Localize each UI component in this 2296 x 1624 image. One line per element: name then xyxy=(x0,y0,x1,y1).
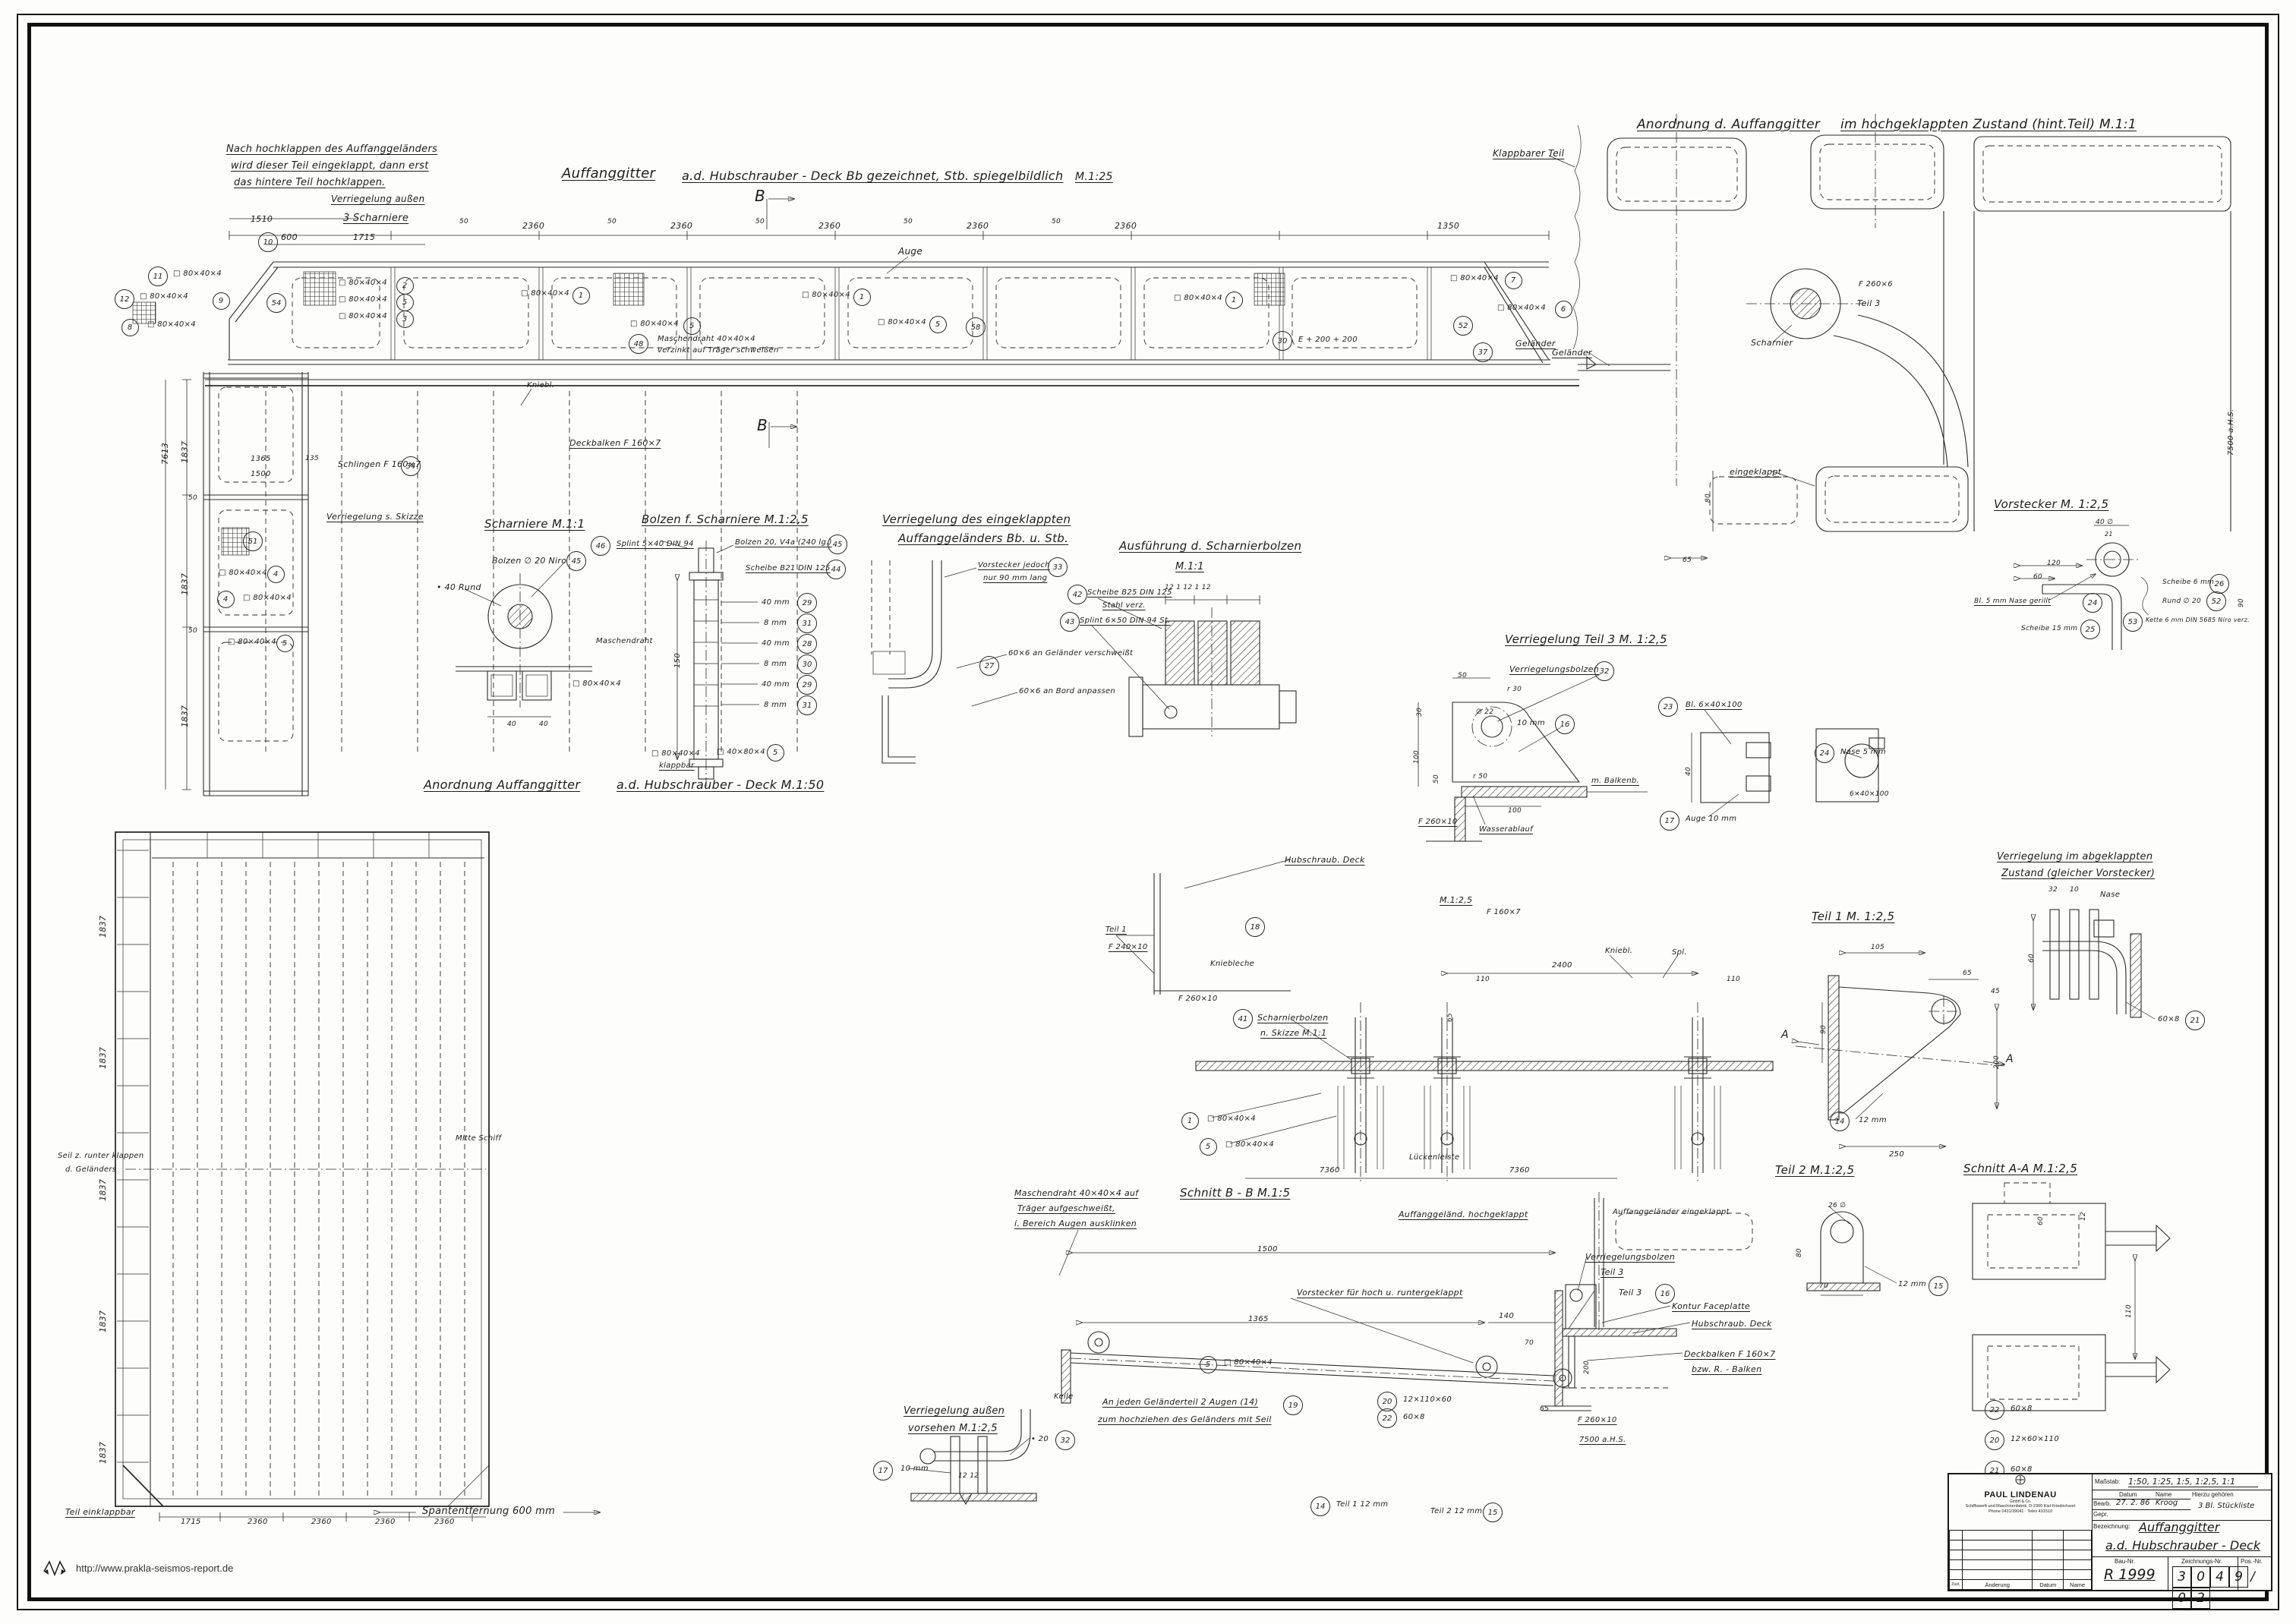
part-number-circle: 31 xyxy=(797,695,817,715)
title-block-company-panel: PAUL LINDENAU GmbH & Co. Schiffswerft un… xyxy=(1949,1474,2093,1590)
annotation-label: 30 xyxy=(1417,708,1424,717)
part-number-circle: 10 xyxy=(258,232,278,252)
annotation-label: 1837 xyxy=(99,916,108,938)
annotation-label: Kniebl. xyxy=(527,382,554,390)
annotation-label: 135 xyxy=(305,456,319,462)
annotation-label: zum hochziehen des Geländers mit Seil xyxy=(1098,1415,1272,1424)
annotation-label: E + 200 + 200 xyxy=(1298,336,1358,345)
annotation-label: F 160×7 xyxy=(1487,909,1521,917)
annotation-label: 1837 xyxy=(181,705,190,727)
annotation-label: Teil einklappbar xyxy=(65,1508,135,1517)
revision-col-name: Name xyxy=(2064,1580,2092,1590)
annotation-label: Auffanggeländers Bb. u. Stb. xyxy=(898,533,1068,545)
position-number-label: Pos.-Nr. xyxy=(2241,1558,2263,1565)
annotation-label: Maschendraht 40×40×4 xyxy=(658,336,755,344)
part-number-circle: 44 xyxy=(826,560,846,579)
part-number-circle: 5 xyxy=(767,744,784,762)
part-number-circle: 32 xyxy=(1594,661,1614,681)
annotation-label: 60×8 xyxy=(2011,1405,2033,1414)
annotation-label: □ 80×40×4 xyxy=(1207,1115,1256,1124)
part-number-circle: 1 xyxy=(572,287,590,304)
annotation-label: 2400 xyxy=(1552,962,1572,970)
annotation-label: Verriegelung des eingeklappten xyxy=(882,514,1071,526)
part-number-circle: 32 xyxy=(1055,1430,1075,1450)
annotation-label: 2360 xyxy=(818,222,840,231)
part-number-circle: 19 xyxy=(1283,1395,1303,1415)
parts-list-note: 3 Bl. Stückliste xyxy=(2198,1502,2254,1510)
watermark-url-text: http://www.prakla-seismos-report.de xyxy=(76,1563,233,1574)
annotation-label: Kniebl. xyxy=(1605,948,1632,956)
annotation-label: Scheibe 6 mm xyxy=(2162,579,2214,586)
part-number-circle: 6 xyxy=(1555,301,1572,318)
part-number-circle: 11 xyxy=(148,266,168,286)
scale-value: 1:50, 1:25, 1:5, 1:2,5, 1:1 xyxy=(2128,1477,2258,1487)
annotation-label: 80 xyxy=(1796,1248,1803,1257)
part-number-circle: 28 xyxy=(797,634,817,654)
annotation-label: 50 xyxy=(607,219,617,225)
annotation-label: A xyxy=(2006,1054,2014,1065)
annotation-label: F 260×10 xyxy=(1178,995,1218,1004)
annotation-label: Anordnung d. Auffanggitter xyxy=(1637,118,1820,132)
part-number-circle: 31 xyxy=(797,613,817,633)
annotation-label: 1715 xyxy=(353,233,375,242)
revision-col-state: Zust. xyxy=(1950,1580,1963,1590)
annotation-label: Klappbarer Teil xyxy=(1493,149,1564,159)
annotation-label: 12×110×60 xyxy=(1403,1396,1452,1405)
annotation-label: F 260×10 xyxy=(1578,1417,1617,1425)
annotation-label: Teil 3 xyxy=(1857,299,1881,308)
annotation-label: 50 xyxy=(755,219,765,225)
annotation-label: Hubschraub. Deck xyxy=(1285,856,1365,865)
annotation-label: 70 xyxy=(1525,1340,1534,1347)
company-address-1: Schiffswerft und Maschinenfabrik, D-2300… xyxy=(1949,1504,2092,1509)
annotation-label: Teil 3 xyxy=(1619,1288,1642,1298)
part-number-circle: 2 xyxy=(396,277,414,295)
annotation-label: Schnitt B - B M.1:5 xyxy=(1180,1187,1290,1200)
annotation-label: Geländer xyxy=(1515,339,1556,348)
annotation-label: m. Balkenb. xyxy=(1591,777,1639,786)
annotation-label: a.d. Hubschrauber - Deck M.1:50 xyxy=(617,779,824,792)
annotation-label: 7500 a.H.S. xyxy=(2228,409,2236,456)
scale-label: Maßstab: xyxy=(2095,1478,2120,1485)
annotation-label: Nase xyxy=(2100,891,2120,900)
revision-col-date: Datum xyxy=(2033,1580,2064,1590)
annotation-label: Teil 1 M. 1:2,5 xyxy=(1812,911,1894,923)
annotation-label: 12×60×110 xyxy=(2011,1436,2059,1444)
part-number-circle: 51 xyxy=(243,531,263,551)
part-number-circle: 30 xyxy=(1273,331,1292,351)
annotation-label: 2360 xyxy=(1115,222,1137,231)
annotation-label: Maschendraht 40×40×4 auf xyxy=(1014,1189,1138,1198)
annotation-label: □ 80×40×4 xyxy=(173,270,222,279)
annotation-label: Bl. 6×40×100 xyxy=(1686,702,1742,710)
annotation-label: Spantentfernung 600 mm xyxy=(422,1506,555,1517)
part-number-circle: 7 xyxy=(1505,272,1522,289)
drawing-digit: 0 xyxy=(2172,1588,2191,1609)
annotation-label: □ 80×40×4 xyxy=(521,290,569,298)
drawing-digit-separator: / xyxy=(2248,1567,2257,1587)
annotation-label: 50 xyxy=(1433,774,1440,784)
annotation-label: Verriegelung außen xyxy=(904,1406,1004,1417)
annotation-label: 65 xyxy=(1447,1013,1454,1022)
part-number-circle: 58 xyxy=(966,317,986,337)
annotation-label: Verriegelung Teil 3 M. 1:2,5 xyxy=(1505,634,1667,646)
part-number-circle: 1 xyxy=(1181,1112,1199,1130)
annotation-label: Verriegelungsbolzen xyxy=(1585,1253,1675,1262)
annotation-label: A xyxy=(1781,1030,1789,1041)
part-number-circle: 42 xyxy=(1068,585,1087,604)
annotation-label: Kniebleche xyxy=(1210,960,1254,969)
annotation-label: Scharniere M.1:1 xyxy=(484,519,585,531)
annotation-label: 140 xyxy=(1499,1313,1514,1321)
annotation-label: Teil 2 M.1:2,5 xyxy=(1775,1165,1854,1177)
annotation-label: 40 ∅ xyxy=(2096,519,2113,526)
annotation-label: B xyxy=(755,188,765,204)
annotation-label: 3 Scharniere xyxy=(343,213,408,224)
annotation-label: Scharnierbolzen xyxy=(1257,1014,1328,1023)
company-address-2: Phone 0431/39041 · Telex 431510 xyxy=(1949,1509,2092,1515)
annotation-label: eingeklappt xyxy=(1730,468,1781,477)
annotation-label: 12 mm xyxy=(1859,1117,1887,1125)
annotation-label: a.d. Hubschrauber - Deck Bb gezeichnet, … xyxy=(682,170,1063,183)
annotation-label: 7360 xyxy=(1509,1167,1530,1175)
annotation-label: □ 80×40×4 xyxy=(630,320,679,329)
annotation-label: 40 mm xyxy=(762,681,790,689)
annotation-label: 2360 xyxy=(522,222,544,231)
part-number-circle: 20 xyxy=(1985,1430,2004,1450)
annotation-label: Geländer xyxy=(1552,348,1592,358)
annotation-label: □ 40×80×4 xyxy=(717,749,765,757)
annotation-label: 60×8 xyxy=(1403,1414,1425,1422)
annotation-label: 40 mm xyxy=(762,599,790,607)
annotation-label: □ 80×40×4 xyxy=(147,321,196,330)
annotation-label: □ 80×40×4 xyxy=(1174,295,1222,303)
annotation-label: 200 xyxy=(1994,1055,2001,1069)
annotation-label: Ausführung d. Scharnierbolzen xyxy=(1119,541,1301,553)
part-number-circle: 43 xyxy=(1060,612,1080,632)
title-block: PAUL LINDENAU GmbH & Co. Schiffswerft un… xyxy=(1947,1473,2272,1591)
annotation-label: Träger aufgeschweißt, xyxy=(1017,1204,1115,1213)
annotation-label: 45 xyxy=(1991,989,2000,995)
annotation-label: Scheibe B25 DIN 125 xyxy=(1087,589,1172,598)
annotation-label: Maschendraht xyxy=(596,638,653,646)
annotation-label: □ 80×40×4 xyxy=(1497,304,1546,313)
annotation-label: 2360 xyxy=(434,1518,455,1527)
annotation-label: F 240×10 xyxy=(1109,944,1148,952)
part-number-circle: 15 xyxy=(1929,1276,1948,1296)
annotation-label: F 260×10 xyxy=(1418,818,1458,827)
annotation-label: □ 80×40×4 xyxy=(1225,1141,1274,1149)
annotation-label: 60×6 an Bord anpassen xyxy=(1019,688,1115,696)
annotation-label: □ 80×40×4 xyxy=(339,296,387,304)
annotation-label: 7360 xyxy=(1320,1167,1340,1175)
part-number-circle: 48 xyxy=(629,334,648,354)
revision-table: Zust. Änderung Datum Name xyxy=(1949,1530,2092,1590)
part-number-circle: 5 xyxy=(1200,1138,1217,1156)
annotation-label: Auge 10 mm xyxy=(1686,815,1736,824)
watermark-url: http://www.prakla-seismos-report.de xyxy=(43,1558,233,1578)
annotation-label: r 50 xyxy=(1473,774,1487,780)
annotation-label: 150 xyxy=(674,653,683,668)
drawing-digit: 3 xyxy=(2172,1566,2191,1588)
annotation-label: Teil 1 12 mm xyxy=(1336,1501,1388,1509)
annotation-label: Teil 2 12 mm xyxy=(1430,1508,1482,1516)
annotation-label: Teil 3 xyxy=(1601,1268,1624,1277)
annotation-label: nur 90 mm lang xyxy=(983,575,1047,583)
drawing-digit: 2 xyxy=(2191,1588,2210,1609)
part-number-circle: 34 xyxy=(401,456,421,476)
annotation-label: 2360 xyxy=(967,222,989,231)
annotation-label: Splint 6×50 DIN 94 St. xyxy=(1080,617,1171,626)
annotation-label: 40 xyxy=(539,721,548,728)
annotation-label: □ 80×40×4 xyxy=(228,639,276,647)
drawing-digit: 9 xyxy=(2229,1566,2248,1588)
annotation-label: 21 xyxy=(2105,531,2113,538)
part-number-circle: 8 xyxy=(121,319,139,336)
part-number-circle: 26 xyxy=(2209,574,2229,594)
part-number-circle: 17 xyxy=(873,1461,893,1481)
annotation-label: M.1:2,5 xyxy=(1440,896,1472,905)
company-name: PAUL LINDENAU xyxy=(1949,1490,2092,1499)
annotation-label: 200 xyxy=(1584,1361,1591,1374)
annotation-label: 110 xyxy=(1727,976,1740,983)
part-number-circle: 5 xyxy=(276,635,294,652)
annotation-label: Verriegelung außen xyxy=(331,194,424,204)
annotation-label: 10 mm xyxy=(1517,720,1545,728)
annotation-label: □ 80×40×4 xyxy=(802,292,850,300)
annotation-label: 40 mm xyxy=(762,640,790,648)
annotation-label: Spl. xyxy=(1672,949,1687,957)
part-number-circle: 23 xyxy=(1658,697,1678,717)
annotation-label: 1837 xyxy=(99,1310,108,1332)
annotation-label: r 30 xyxy=(1507,686,1522,693)
annotation-label: F 260×6 xyxy=(1859,281,1893,289)
part-number-circle: 5 xyxy=(396,294,414,311)
title-block-fields: Maßstab: 1:50, 1:25, 1:5, 1:2,5, 1:1 Dat… xyxy=(2092,1474,2271,1590)
annotation-label: 1837 xyxy=(181,441,190,463)
annotation-label: Zustand (gleicher Vorstecker) xyxy=(2001,869,2155,879)
part-number-circle: 1 xyxy=(853,289,871,306)
part-number-circle: 53 xyxy=(2123,612,2143,632)
part-number-circle: 18 xyxy=(1245,917,1265,937)
annotation-label: □ 80×40×4 xyxy=(140,293,188,301)
part-number-circle: 46 xyxy=(591,536,610,556)
annotation-label: Auffanggeländer eingeklappt xyxy=(1613,1209,1730,1217)
part-number-circle: 1 xyxy=(1225,292,1243,309)
part-number-circle: 4 xyxy=(267,566,285,583)
annotation-label: Kontur Faceplatte xyxy=(1672,1302,1750,1311)
part-number-circle: 5 xyxy=(1200,1356,1217,1373)
annotation-label: 110 xyxy=(1476,976,1490,983)
annotation-label: Nach hochklappen des Auffanggeländers xyxy=(226,144,437,155)
annotation-label: 60 xyxy=(2033,574,2042,581)
annotation-label: 1837 xyxy=(99,1047,108,1069)
part-number-circle: 4 xyxy=(217,591,235,608)
annotation-label: 100 xyxy=(1508,808,1522,815)
annotation-label: 600 xyxy=(281,233,298,242)
drawing-sheet: Nach hochklappen des Auffanggeländerswir… xyxy=(0,0,2296,1624)
annotation-label: Wasserablauf xyxy=(1479,826,1533,834)
annotation-label: Scharnier xyxy=(1751,339,1793,348)
annotation-label: Keile xyxy=(1054,1393,1074,1402)
lindenau-logo-icon xyxy=(2014,1474,2027,1485)
annotation-label: bzw. R. - Balken xyxy=(1692,1365,1761,1374)
annotation-label: 105 xyxy=(1871,944,1884,951)
annotation-label: □ 80×40×4 xyxy=(651,750,700,758)
annotation-label: Verriegelung im abgeklappten xyxy=(1997,852,2152,862)
date-column-label: Datum xyxy=(2119,1491,2137,1498)
annotation-label: □ 80×40×4 xyxy=(1224,1359,1273,1367)
annotation-label: Deckbalken F 160×7 xyxy=(569,439,661,448)
annotation-label: 7613 xyxy=(161,443,170,465)
annotation-label: Kette 6 mm DIN 5685 Niro verz. xyxy=(2146,617,2250,623)
annotation-label: ∅ 22 xyxy=(1476,709,1493,716)
annotation-label: Vorstecker jedoch xyxy=(978,562,1050,570)
annotation-label: im hochgeklappten Zustand (hint.Teil) M.… xyxy=(1840,118,2137,132)
annotation-label: 1837 xyxy=(99,1179,108,1201)
build-number-label: Bau-Nr. xyxy=(2115,1558,2135,1565)
part-number-circle: 54 xyxy=(266,293,286,313)
annotation-label: 100 xyxy=(1414,750,1421,764)
annotation-label: Deckbalken F 160×7 xyxy=(1684,1350,1775,1359)
annotation-label: 65 xyxy=(1540,1406,1549,1413)
annotation-label: 8 mm xyxy=(764,661,787,669)
annotation-label: 120 xyxy=(2047,560,2061,567)
part-number-circle: 45 xyxy=(828,535,847,554)
editor-name: Kroog xyxy=(2156,1499,2178,1507)
part-number-circle: 33 xyxy=(1048,557,1068,577)
annotation-label: Hubschraub. Deck xyxy=(1692,1320,1772,1329)
annotation-label: 1350 xyxy=(1437,222,1459,231)
annotation-label: Bolzen ∅ 20 Niro xyxy=(492,557,566,566)
annotation-label: 1837 xyxy=(181,573,190,595)
annotation-label: 90 xyxy=(2238,598,2245,607)
annotation-label: □ 80×40×4 xyxy=(339,313,387,321)
annotation-label: 40 xyxy=(1686,767,1692,776)
annotation-label: 250 xyxy=(1889,1151,1904,1159)
annotation-label: 1365 xyxy=(251,456,271,464)
annotation-label: 1510 xyxy=(251,215,273,224)
annotation-layer: Nach hochklappen des Auffanggeländerswir… xyxy=(0,0,2296,1624)
annotation-label: 2360 xyxy=(311,1518,332,1527)
annotation-label: 50 xyxy=(904,219,913,225)
designation-line2: a.d. Hubschrauber - Deck xyxy=(2105,1538,2260,1553)
annotation-label: Auffanggitter xyxy=(562,167,655,181)
annotation-label: Verriegelungsbolzen xyxy=(1509,665,1599,674)
annotation-label: 12 xyxy=(2080,1212,2087,1221)
annotation-label: d. Geländers xyxy=(65,1166,116,1175)
designation-line1: Auffanggitter xyxy=(2139,1520,2219,1534)
annotation-label: Nase 5 mm xyxy=(1840,749,1886,757)
part-number-circle: 3 xyxy=(396,311,414,328)
part-number-circle: 22 xyxy=(1377,1408,1397,1428)
annotation-label: □ 80×40×4 xyxy=(1450,275,1499,283)
revision-col-change: Änderung xyxy=(1962,1580,2032,1590)
annotation-label: 8 mm xyxy=(764,620,787,628)
annotation-label: 80 xyxy=(1705,494,1712,503)
part-number-circle: 29 xyxy=(797,593,817,613)
annotation-label: Vorstecker M. 1:2,5 xyxy=(1994,499,2108,511)
annotation-label: □ 80×40×4 xyxy=(219,569,267,578)
part-number-circle: 21 xyxy=(2185,1011,2205,1030)
designation-label: Bezeichnung: xyxy=(2093,1523,2130,1530)
drawing-digit: 0 xyxy=(2191,1566,2210,1588)
annotation-label: Schnitt A-A M.1:2,5 xyxy=(1963,1163,2077,1175)
annotation-label: Verriegelung s. Skizze xyxy=(326,512,424,522)
annotation-label: Stahl verz. xyxy=(1102,602,1146,610)
annotation-label: das hintere Teil hochklappen. xyxy=(234,178,386,188)
annotation-label: 2360 xyxy=(248,1518,268,1527)
annotation-label: 2360 xyxy=(375,1518,396,1527)
part-number-circle: 29 xyxy=(797,675,817,695)
drawing-number-digits: 3049/02 xyxy=(2172,1566,2271,1609)
annotation-label: • 20 xyxy=(1031,1436,1049,1444)
annotation-label: 65 xyxy=(1683,557,1692,564)
belongs-to-label: Hierzu gehören xyxy=(2192,1491,2234,1498)
prakla-seismos-logo-icon xyxy=(43,1558,70,1578)
annotation-label: 60×8 xyxy=(2158,1016,2180,1024)
annotation-label: 90 xyxy=(1821,1025,1828,1034)
annotation-label: i. Bereich Augen ausklinken xyxy=(1014,1219,1137,1228)
annotation-label: Seil z. runter klappen xyxy=(58,1153,143,1161)
part-number-circle: 14 xyxy=(1830,1112,1850,1131)
annotation-label: 6×40×100 xyxy=(1850,791,1889,798)
annotation-label: Bolzen 20, V4a (240 lg.) xyxy=(735,539,832,547)
annotation-label: 50 xyxy=(459,219,468,225)
annotation-label: 10 xyxy=(2070,887,2079,894)
annotation-label: 40 xyxy=(507,721,516,728)
annotation-label: 50 xyxy=(1458,673,1467,680)
annotation-label: 12 mm xyxy=(1898,1281,1926,1289)
editor-date: 27. 2. 86 xyxy=(2116,1499,2150,1507)
annotation-label: 26 ∅ xyxy=(1828,1203,1846,1209)
annotation-label: 1837 xyxy=(99,1442,108,1464)
annotation-label: An jeden Geländerteil 2 Augen (14) xyxy=(1102,1398,1258,1407)
drawing-digit: 4 xyxy=(2210,1566,2229,1588)
drawing-number-label: Zeichnungs-Nr. xyxy=(2181,1558,2222,1565)
annotation-label: 60 xyxy=(2038,1216,2045,1225)
part-number-circle: 9 xyxy=(213,292,230,310)
annotation-label: Anordnung Auffanggitter xyxy=(424,779,580,792)
part-number-circle: 37 xyxy=(1473,342,1493,362)
annotation-label: 32 xyxy=(2048,887,2058,894)
annotation-label: M.1:25 xyxy=(1075,172,1113,183)
annotation-label: □ 80×40×4 xyxy=(878,319,926,327)
part-number-circle: 25 xyxy=(2080,620,2100,639)
part-number-circle: 27 xyxy=(979,656,999,676)
annotation-label: Auffanggeländ. hochgeklappt xyxy=(1399,1210,1528,1219)
annotation-label: 2360 xyxy=(670,222,692,231)
annotation-label: 1715 xyxy=(181,1518,201,1527)
part-number-circle: 52 xyxy=(1453,316,1473,336)
annotation-label: 10 mm xyxy=(900,1465,929,1474)
annotation-label: n. Skizze M.1:1 xyxy=(1260,1029,1326,1038)
annotation-label: Mitte Schiff xyxy=(456,1135,501,1143)
part-number-circle: 45 xyxy=(566,551,586,571)
part-number-circle: 16 xyxy=(1555,714,1575,734)
annotation-label: Bl. 5 mm Nase gerillt xyxy=(1974,598,2051,605)
checked-label: Gepr. xyxy=(2093,1511,2108,1518)
annotation-label: 1500 xyxy=(251,471,271,479)
annotation-label: 50 xyxy=(188,495,197,502)
annotation-label: B xyxy=(757,418,768,434)
annotation-label: Vorstecker für hoch u. runtergeklappt xyxy=(1297,1288,1463,1298)
annotation-label: □ 80×40×4 xyxy=(572,680,621,689)
annotation-label: Scheibe B21 DIN 125 xyxy=(746,565,831,573)
annotation-label: 50 xyxy=(188,628,197,635)
annotation-label: klappbar xyxy=(659,762,694,771)
part-number-circle: 52 xyxy=(2206,591,2226,611)
